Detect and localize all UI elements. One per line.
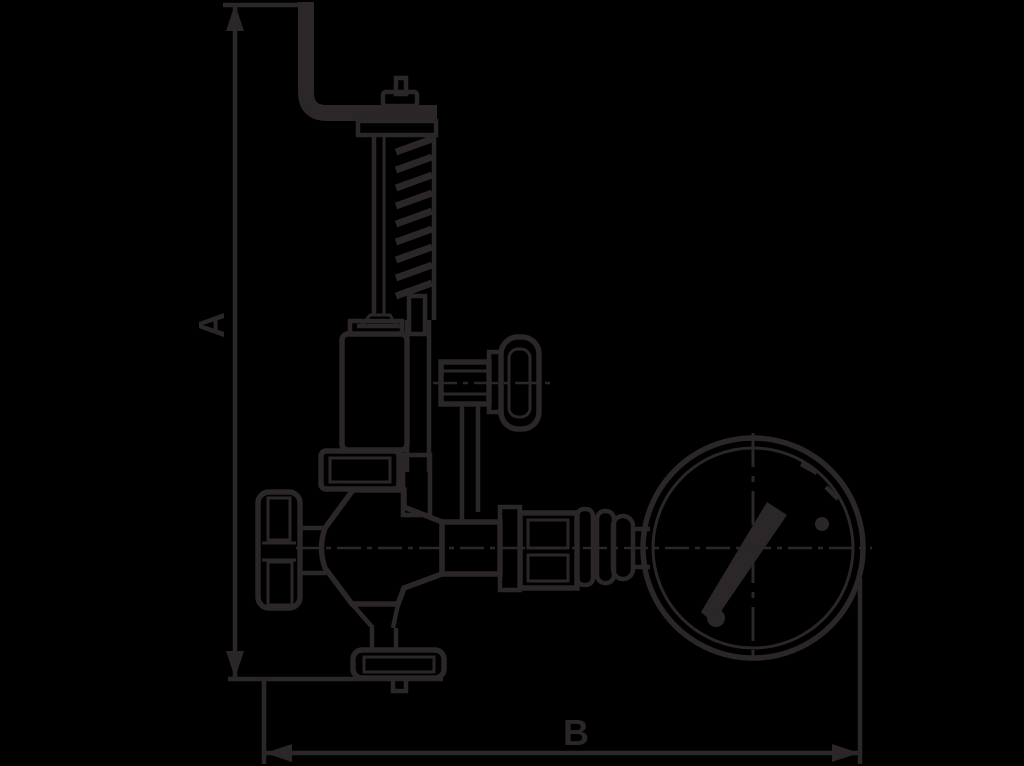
spindle [409, 296, 425, 334]
arrowhead-left-icon [265, 744, 292, 762]
spring-bonnet [342, 121, 436, 472]
arrowhead-up-icon [226, 4, 244, 31]
valve-dimension-drawing: A B [0, 0, 1024, 766]
spindle-cap [383, 92, 417, 106]
bonnet-housing [342, 334, 407, 450]
gland-inner [330, 458, 390, 482]
gauge-valve [433, 337, 556, 522]
arrowhead-down-icon [226, 651, 244, 678]
bottom-flange [353, 650, 444, 678]
valve-body-group [258, 490, 444, 691]
bottom-flange-inner [364, 657, 434, 672]
dimension-a-label: A [191, 312, 232, 338]
arrowhead-right-icon [832, 744, 859, 762]
bonnet-top-plate [358, 121, 436, 135]
union-nut-facet-top [528, 520, 568, 548]
needle-tail-dot [707, 609, 725, 627]
gland-flange [321, 451, 430, 515]
union-nut-facet-bottom [528, 555, 568, 581]
dimension-b-label: B [563, 712, 589, 753]
case-screw-dot [815, 517, 829, 531]
spring-coils [396, 139, 432, 296]
handwheel-rim-bottom [268, 562, 292, 605]
handwheel [258, 492, 300, 608]
dimension-drawing-canvas: A B [0, 0, 1024, 766]
gauge-needle [701, 502, 787, 623]
test-lever [306, 2, 437, 113]
body-taper [352, 604, 398, 628]
drain-stub [393, 678, 406, 691]
handwheel-rim-top [268, 498, 290, 540]
